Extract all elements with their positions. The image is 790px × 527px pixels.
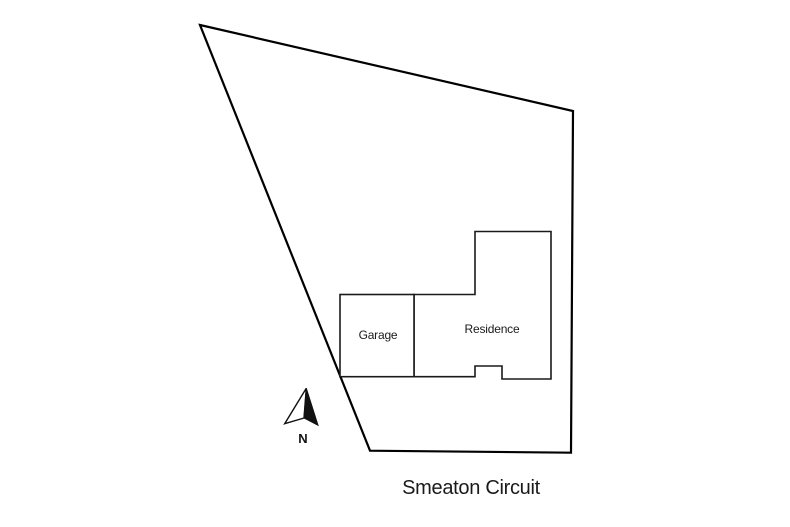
north-arrow-right-half [304, 388, 318, 425]
north-label: N [298, 431, 307, 446]
garage-label: Garage [359, 328, 398, 342]
residence-outline [414, 232, 551, 380]
site-plan-canvas: N Garage Residence Smeaton Circuit [0, 0, 790, 527]
residence-label: Residence [465, 322, 520, 336]
site-plan-drawing: N Garage Residence Smeaton Circuit [0, 0, 790, 527]
north-arrow-icon: N [285, 388, 318, 446]
street-label: Smeaton Circuit [402, 477, 541, 499]
north-arrow-left-half [285, 388, 307, 423]
